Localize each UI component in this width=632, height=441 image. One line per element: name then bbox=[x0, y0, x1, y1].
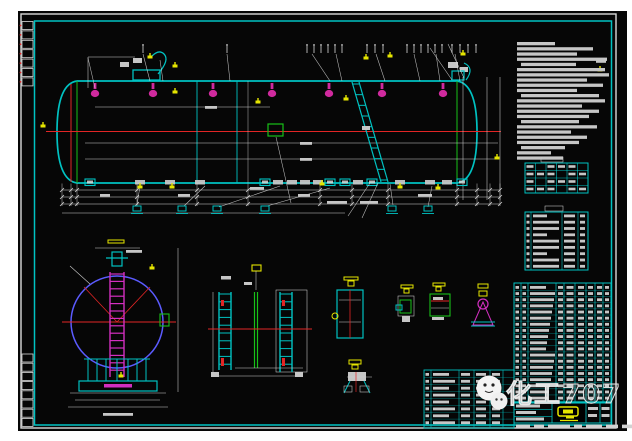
revision-mark bbox=[20, 25, 22, 27]
table-cell-text bbox=[426, 408, 430, 411]
table-cell-text bbox=[564, 265, 575, 268]
table-cell-text bbox=[476, 421, 486, 424]
table-cell-text bbox=[605, 360, 609, 363]
table-cell-text bbox=[588, 329, 593, 332]
table-cell-text bbox=[533, 227, 559, 230]
table-cell-text bbox=[492, 421, 500, 424]
table-cell-text bbox=[523, 335, 527, 338]
bottom-fitting-core bbox=[327, 181, 333, 184]
table-cell-text bbox=[567, 329, 574, 332]
table-cell-text bbox=[578, 329, 584, 332]
table-cell-text bbox=[588, 348, 593, 351]
table-cell-text bbox=[523, 360, 527, 363]
yellow-tag bbox=[119, 375, 124, 378]
dim-tick-dot bbox=[306, 44, 308, 46]
table-cell-text bbox=[567, 311, 574, 314]
table-cell-text bbox=[433, 387, 449, 390]
dim-tick-dot bbox=[427, 44, 429, 46]
dim-text-bar bbox=[103, 413, 133, 416]
table-cell-text bbox=[516, 317, 520, 320]
table-cell-text bbox=[564, 246, 575, 249]
table-cell-text bbox=[523, 341, 527, 344]
table-cell-text bbox=[527, 173, 534, 176]
table-cell-text bbox=[426, 394, 430, 397]
table-cell-text bbox=[516, 329, 520, 332]
title-bottom-text bbox=[548, 425, 570, 429]
note-text-line bbox=[517, 84, 603, 87]
note-text-line bbox=[517, 73, 609, 76]
table-cell-text bbox=[578, 360, 584, 363]
table-cell-text bbox=[523, 348, 527, 351]
table-cell-text bbox=[537, 173, 544, 176]
table-cell-text bbox=[580, 240, 585, 243]
nozzle-flange-icon bbox=[439, 90, 447, 97]
yellow-tag bbox=[364, 57, 369, 60]
cad-drawing-screenshot: 化工707 bbox=[0, 0, 632, 441]
table-cell-text bbox=[564, 240, 575, 243]
dim-tick-dot bbox=[226, 44, 228, 46]
table-cell-text bbox=[605, 304, 609, 307]
table-cell-text bbox=[516, 335, 520, 338]
nozzle-flange-icon bbox=[91, 90, 99, 97]
table-cell-text bbox=[558, 180, 565, 183]
table-cell-text bbox=[523, 366, 527, 369]
table-cell-text bbox=[578, 335, 584, 338]
table-cell-text bbox=[533, 240, 559, 243]
dim-tick-dot bbox=[142, 44, 144, 46]
yellow-tag-stem bbox=[389, 52, 390, 55]
table-cell-text bbox=[558, 311, 563, 314]
table-cell-text bbox=[578, 317, 584, 320]
table-cell-text bbox=[588, 354, 593, 357]
note-text-line bbox=[517, 110, 599, 113]
table-cell-text bbox=[530, 354, 555, 357]
nozzle-stem bbox=[381, 83, 384, 89]
table-cell-text bbox=[558, 372, 563, 375]
yellow-tag bbox=[461, 53, 466, 56]
table-cell-text bbox=[578, 366, 584, 369]
dim-tick-dot bbox=[467, 44, 469, 46]
revision-mark bbox=[20, 81, 22, 83]
table-cell-text bbox=[523, 317, 527, 320]
table-cell-text bbox=[588, 366, 593, 369]
table-cell-text bbox=[564, 233, 575, 236]
dim-tick-dot bbox=[366, 44, 368, 46]
nozzle-flange-icon bbox=[209, 90, 217, 97]
table-cell-text bbox=[580, 252, 585, 255]
table-cell-text bbox=[564, 221, 575, 224]
dim-text-bar bbox=[360, 201, 378, 204]
table-cell-text bbox=[533, 252, 547, 255]
table-cell-text bbox=[433, 394, 455, 397]
table-cell-text bbox=[569, 188, 576, 191]
table-cell-text bbox=[597, 354, 602, 357]
table-cell-text bbox=[516, 292, 520, 295]
table-cell-text bbox=[530, 372, 552, 375]
cad-canvas: 化工707 bbox=[0, 0, 632, 441]
table-cell-text bbox=[558, 354, 563, 357]
table-cell-text bbox=[578, 298, 584, 301]
table-cell-text bbox=[476, 408, 486, 411]
yellow-tag bbox=[173, 91, 178, 94]
table-cell-text bbox=[597, 329, 602, 332]
table-cell-text bbox=[516, 298, 520, 301]
yellow-tag-stem bbox=[399, 183, 400, 186]
table-cell-text bbox=[567, 286, 574, 289]
dim-tick-dot bbox=[475, 44, 477, 46]
note-text-line bbox=[517, 130, 571, 133]
yellow-tag bbox=[436, 187, 441, 190]
nozzle-flange-icon bbox=[378, 90, 386, 97]
yellow-tag-stem bbox=[462, 50, 463, 53]
table-cell-text bbox=[558, 286, 563, 289]
table-cell-text bbox=[605, 311, 609, 314]
table-cell-text bbox=[558, 329, 563, 332]
table-cell-text bbox=[533, 246, 559, 249]
table-cell-text bbox=[530, 311, 552, 314]
dim-text-bar bbox=[327, 201, 347, 204]
revision-mark bbox=[20, 53, 22, 55]
table-cell-text bbox=[530, 366, 553, 369]
table-cell-text bbox=[558, 335, 563, 338]
table-cell-text bbox=[530, 348, 546, 351]
table-cell-text bbox=[533, 221, 559, 224]
table-cell-text bbox=[597, 348, 602, 351]
bottom-fitting-white bbox=[287, 180, 297, 185]
table-cell-text bbox=[476, 373, 486, 376]
title-bottom-text bbox=[516, 425, 530, 429]
table-cell-text bbox=[516, 341, 520, 344]
table-cell-text bbox=[558, 298, 563, 301]
table-cell-text bbox=[523, 329, 527, 332]
table-cell-text bbox=[588, 292, 593, 295]
table-cell-text bbox=[580, 233, 585, 236]
table-cell-text bbox=[597, 298, 602, 301]
yellow-tag-stem bbox=[139, 183, 140, 186]
yellow-tag-stem bbox=[257, 98, 258, 101]
table-cell-text bbox=[605, 372, 609, 375]
table-cell-text bbox=[527, 233, 530, 236]
table-cell-text bbox=[523, 286, 527, 289]
table-cell-text bbox=[567, 317, 574, 320]
bottom-fitting-white bbox=[425, 180, 435, 185]
yellow-tag bbox=[495, 157, 500, 160]
table-cell-text bbox=[597, 372, 602, 375]
note-text-line bbox=[517, 136, 587, 139]
table-cell-text bbox=[461, 394, 470, 397]
table-cell-text bbox=[533, 233, 547, 236]
table-cell-text bbox=[530, 341, 547, 344]
table-cell-text bbox=[597, 311, 602, 314]
bottom-fitting-white bbox=[195, 180, 205, 185]
table-cell-text bbox=[516, 304, 520, 307]
table-cell-text bbox=[579, 173, 586, 176]
bottom-fitting-core bbox=[87, 181, 93, 184]
table-cell-text bbox=[527, 246, 530, 249]
table-cell-text bbox=[588, 323, 593, 326]
table-cell-text bbox=[548, 188, 555, 191]
table-cell-text bbox=[564, 227, 575, 230]
table-cell-text bbox=[597, 304, 602, 307]
dim-text-bar bbox=[418, 194, 432, 197]
table-cell-text bbox=[578, 354, 584, 357]
table-cell-text bbox=[588, 360, 593, 363]
table-cell-text bbox=[567, 372, 574, 375]
dim-text-bar bbox=[126, 250, 142, 253]
table-cell-text bbox=[527, 259, 530, 262]
yellow-tag-stem bbox=[365, 54, 366, 57]
note-text-line bbox=[517, 151, 551, 154]
table-cell-text bbox=[426, 373, 430, 376]
note-text-line bbox=[517, 99, 605, 102]
table-cell-text bbox=[426, 380, 430, 383]
note-text-line bbox=[517, 125, 597, 128]
table-cell-text bbox=[516, 372, 520, 375]
table-cell-text bbox=[558, 292, 563, 295]
table-cell-text bbox=[433, 401, 449, 404]
nozzle-stem bbox=[212, 83, 215, 89]
dim-tick-dot bbox=[327, 44, 329, 46]
bottom-fitting-core bbox=[262, 181, 268, 184]
table-cell-text bbox=[580, 215, 585, 218]
table-cell-text bbox=[588, 286, 593, 289]
dim-tick-dot bbox=[420, 44, 422, 46]
table-cell-text bbox=[578, 341, 584, 344]
table-cell-text bbox=[516, 366, 520, 369]
table-cell-text bbox=[516, 348, 520, 351]
dim-tick-dot bbox=[406, 44, 408, 46]
table-cell-text bbox=[516, 354, 520, 357]
yellow-tag-stem bbox=[42, 122, 43, 125]
watermark-text: 化工707 bbox=[506, 380, 622, 410]
table-cell-text bbox=[530, 317, 551, 320]
table-cell-text bbox=[558, 348, 563, 351]
table-cell-text bbox=[476, 401, 486, 404]
table-cell-text bbox=[569, 173, 576, 176]
table-cell-text bbox=[530, 292, 555, 295]
table-cell-text bbox=[564, 259, 575, 262]
table-cell-text bbox=[588, 341, 593, 344]
table-cell-text bbox=[461, 380, 470, 383]
table-cell-text bbox=[537, 188, 544, 191]
table-cell-text bbox=[580, 265, 585, 268]
revision-mark bbox=[20, 72, 22, 74]
table-cell-text bbox=[567, 304, 574, 307]
table-cell-text bbox=[492, 373, 500, 376]
yellow-tag-stem bbox=[171, 183, 172, 186]
table-cell-text bbox=[461, 421, 470, 424]
table-cell-text bbox=[433, 414, 449, 417]
table-cell-text bbox=[461, 387, 470, 390]
yellow-tag-stem bbox=[174, 62, 175, 65]
bottom-fitting-white bbox=[165, 180, 175, 185]
saddle-base-plate bbox=[104, 384, 132, 388]
table-cell-text bbox=[597, 341, 602, 344]
title-bottom-text bbox=[606, 425, 618, 429]
nozzle-stem bbox=[442, 83, 445, 89]
table-cell-text bbox=[426, 421, 430, 424]
table-cell-text bbox=[461, 373, 470, 376]
nozzle-stem bbox=[271, 83, 274, 89]
bottom-fitting-white bbox=[300, 180, 310, 185]
note-text-line bbox=[521, 146, 565, 149]
table-cell-text bbox=[567, 360, 574, 363]
table-cell-text bbox=[527, 252, 530, 255]
table-cell-text bbox=[426, 414, 430, 417]
table-cell-text bbox=[461, 414, 470, 417]
note-text-line bbox=[517, 104, 582, 107]
table-cell-text bbox=[578, 372, 584, 375]
dim-tick-dot bbox=[341, 44, 343, 46]
note-text-line bbox=[517, 47, 593, 50]
note-text-line bbox=[521, 120, 579, 123]
table-cell-text bbox=[433, 421, 455, 424]
table-cell-text bbox=[433, 408, 455, 411]
table-cell-text bbox=[461, 401, 470, 404]
table-cell-text bbox=[516, 286, 520, 289]
dim-tick-dot bbox=[320, 44, 322, 46]
note-text-line bbox=[517, 42, 555, 45]
table-cell-text bbox=[530, 323, 550, 326]
table-cell-text bbox=[567, 366, 574, 369]
note-text-line bbox=[517, 89, 577, 92]
yellow-tag-stem bbox=[321, 180, 322, 183]
table-cell-text bbox=[597, 335, 602, 338]
yellow-tag bbox=[148, 56, 153, 59]
table-cell-text bbox=[527, 180, 534, 183]
table-cell-text bbox=[523, 311, 527, 314]
table-cell-text bbox=[588, 335, 593, 338]
table-cell-text bbox=[567, 348, 574, 351]
table-cell-text bbox=[597, 292, 602, 295]
revision-mark bbox=[20, 34, 22, 36]
table-cell-text bbox=[426, 401, 430, 404]
nozzle-stem bbox=[328, 83, 331, 89]
nozzle-flange-icon bbox=[325, 90, 333, 97]
table-cell-text bbox=[605, 317, 609, 320]
table-cell-text bbox=[433, 380, 455, 383]
table-cell-text bbox=[527, 240, 530, 243]
table-cell-text bbox=[605, 366, 609, 369]
yellow-tag-stem bbox=[149, 53, 150, 56]
yellow-tag-stem bbox=[496, 154, 497, 157]
title-bottom-text bbox=[574, 425, 582, 429]
table-cell-text bbox=[578, 304, 584, 307]
note-text-line bbox=[517, 78, 587, 81]
table-cell-text bbox=[605, 292, 609, 295]
bottom-fitting-white bbox=[273, 180, 283, 185]
table-cell-text bbox=[527, 215, 530, 218]
table-cell-text bbox=[597, 286, 602, 289]
table-cell-text bbox=[530, 286, 546, 289]
note-text-line bbox=[517, 52, 577, 55]
nozzle-stem bbox=[152, 83, 155, 89]
table-cell-text bbox=[527, 221, 530, 224]
bottom-fitting-white bbox=[353, 180, 363, 185]
note-text-line bbox=[517, 115, 589, 118]
dim-tick-dot bbox=[334, 44, 336, 46]
table-cell-text bbox=[492, 414, 500, 417]
table-cell-text bbox=[605, 329, 609, 332]
table-cell-text bbox=[588, 317, 593, 320]
table-cell-text bbox=[588, 298, 593, 301]
table-cell-text bbox=[530, 298, 554, 301]
yellow-tag-stem bbox=[345, 95, 346, 98]
table-cell-text bbox=[597, 366, 602, 369]
table-cell-text bbox=[578, 286, 584, 289]
note-text-line bbox=[517, 58, 607, 61]
table-cell-text bbox=[530, 335, 548, 338]
table-cell-text bbox=[530, 360, 554, 363]
table-cell-text bbox=[558, 317, 563, 320]
table-cell-text bbox=[605, 335, 609, 338]
table-cell-text bbox=[567, 354, 574, 357]
dim-tick-dot bbox=[313, 44, 315, 46]
dim-tick-dot bbox=[451, 44, 453, 46]
table-cell-text bbox=[558, 323, 563, 326]
title-bottom-text bbox=[534, 425, 544, 429]
dim-text-bar bbox=[178, 194, 190, 197]
note-text-line bbox=[517, 68, 605, 71]
yellow-tag bbox=[320, 183, 325, 186]
table-cell-text bbox=[569, 165, 576, 168]
table-cell-text bbox=[426, 387, 430, 390]
table-cell-text bbox=[558, 341, 563, 344]
yellow-tag bbox=[344, 98, 349, 101]
table-cell-text bbox=[533, 215, 547, 218]
table-cell-text bbox=[516, 323, 520, 326]
table-cell-text bbox=[548, 173, 555, 176]
yellow-tag bbox=[150, 267, 155, 270]
yellow-tag-stem bbox=[151, 264, 152, 267]
table-cell-text bbox=[527, 227, 530, 230]
table-cell-text bbox=[548, 165, 555, 168]
table-cell-text bbox=[580, 221, 585, 224]
bottom-fitting-core bbox=[459, 181, 465, 184]
table-cell-text bbox=[527, 188, 534, 191]
table-cell-text bbox=[605, 348, 609, 351]
dim-tick-dot bbox=[374, 44, 376, 46]
table-cell-text bbox=[530, 304, 553, 307]
table-cell-text bbox=[516, 311, 520, 314]
yellow-tag-stem bbox=[120, 372, 121, 375]
table-cell-text bbox=[567, 292, 574, 295]
table-cell-text bbox=[548, 180, 555, 183]
table-cell-text bbox=[530, 329, 549, 332]
table-cell-text bbox=[564, 252, 575, 255]
revision-mark bbox=[20, 62, 22, 64]
title-bottom-text bbox=[586, 425, 602, 429]
yellow-tag bbox=[138, 186, 143, 189]
dim-tick-dot bbox=[382, 44, 384, 46]
watermark: 化工707 bbox=[477, 376, 623, 411]
table-cell-text bbox=[558, 304, 563, 307]
bottom-fitting-core bbox=[342, 181, 348, 184]
yellow-tag bbox=[173, 65, 178, 68]
table-cell-text bbox=[578, 348, 584, 351]
table-cell-text bbox=[461, 408, 470, 411]
yellow-tag bbox=[388, 55, 393, 58]
dim-text-bar bbox=[250, 187, 264, 190]
table-cell-text bbox=[580, 259, 585, 262]
table-cell-text bbox=[433, 373, 449, 376]
yellow-tag-stem bbox=[437, 184, 438, 187]
table-cell-text bbox=[578, 311, 584, 314]
table-cell-text bbox=[476, 414, 486, 417]
table-cell-text bbox=[578, 292, 584, 295]
title-bottom-text bbox=[622, 425, 632, 429]
yellow-tag-stem bbox=[174, 88, 175, 91]
